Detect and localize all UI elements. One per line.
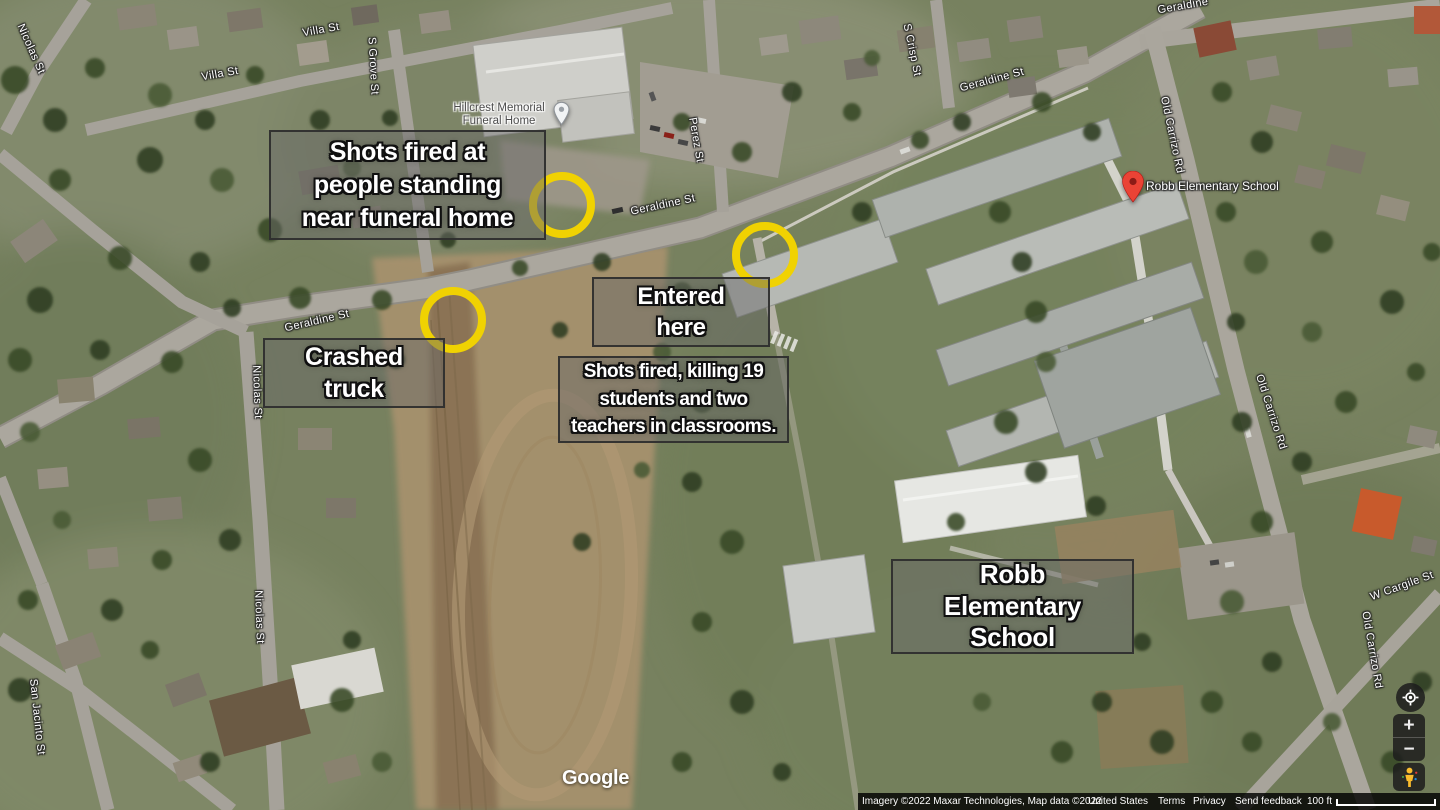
scale-bar[interactable] (1336, 799, 1436, 806)
zoom-control: + − (1393, 714, 1425, 761)
privacy-link[interactable]: Privacy (1193, 796, 1226, 807)
send-feedback-link[interactable]: Send feedback (1235, 796, 1302, 807)
pegman-icon (1401, 767, 1418, 788)
annotation-entered-here-text: Entered here (637, 281, 724, 343)
annotation-classrooms-text: Shots fired, killing 19 students and two… (571, 358, 776, 441)
attribution-bar: Imagery ©2022 Maxar Technologies, Map da… (858, 793, 1440, 810)
annotation-classrooms: Shots fired, killing 19 students and two… (558, 356, 789, 443)
terms-link[interactable]: Terms (1158, 796, 1185, 807)
annotation-funeral-home-text: Shots fired at people standing near fune… (302, 136, 514, 235)
funeral-home-pin-icon[interactable] (553, 101, 570, 127)
my-location-button[interactable] (1396, 683, 1425, 712)
zoom-out-button[interactable]: − (1393, 737, 1425, 760)
imagery-attribution: Imagery ©2022 Maxar Technologies, Map da… (862, 796, 1102, 807)
street-label-nicolas-3: Nicolas St (252, 590, 266, 644)
school-pin-icon[interactable] (1122, 171, 1144, 205)
my-location-icon (1402, 689, 1419, 706)
annotation-entered-here: Entered here (592, 277, 770, 347)
annotation-school: Robb Elementary School (891, 559, 1134, 654)
school-pin-label[interactable]: Robb Elementary School (1146, 179, 1279, 193)
annotation-school-text: Robb Elementary School (944, 559, 1081, 654)
annotation-crashed-truck-text: Crashed truck (305, 341, 403, 406)
street-label-nicolas-2: Nicolas St (250, 365, 264, 419)
scale-label[interactable]: 100 ft (1307, 796, 1332, 807)
annotation-funeral-home: Shots fired at people standing near fune… (269, 130, 546, 240)
zoom-in-button[interactable]: + (1393, 714, 1425, 737)
funeral-home-label[interactable]: Hillcrest Memorial Funeral Home (453, 102, 544, 128)
google-logo[interactable]: Google (562, 767, 629, 790)
region-label: United States (1088, 796, 1148, 807)
pegman-button[interactable] (1393, 763, 1425, 791)
map-canvas[interactable]: Nicolas St Villa St Villa St S Grove St … (0, 0, 1440, 810)
annotation-crashed-truck: Crashed truck (263, 338, 445, 408)
